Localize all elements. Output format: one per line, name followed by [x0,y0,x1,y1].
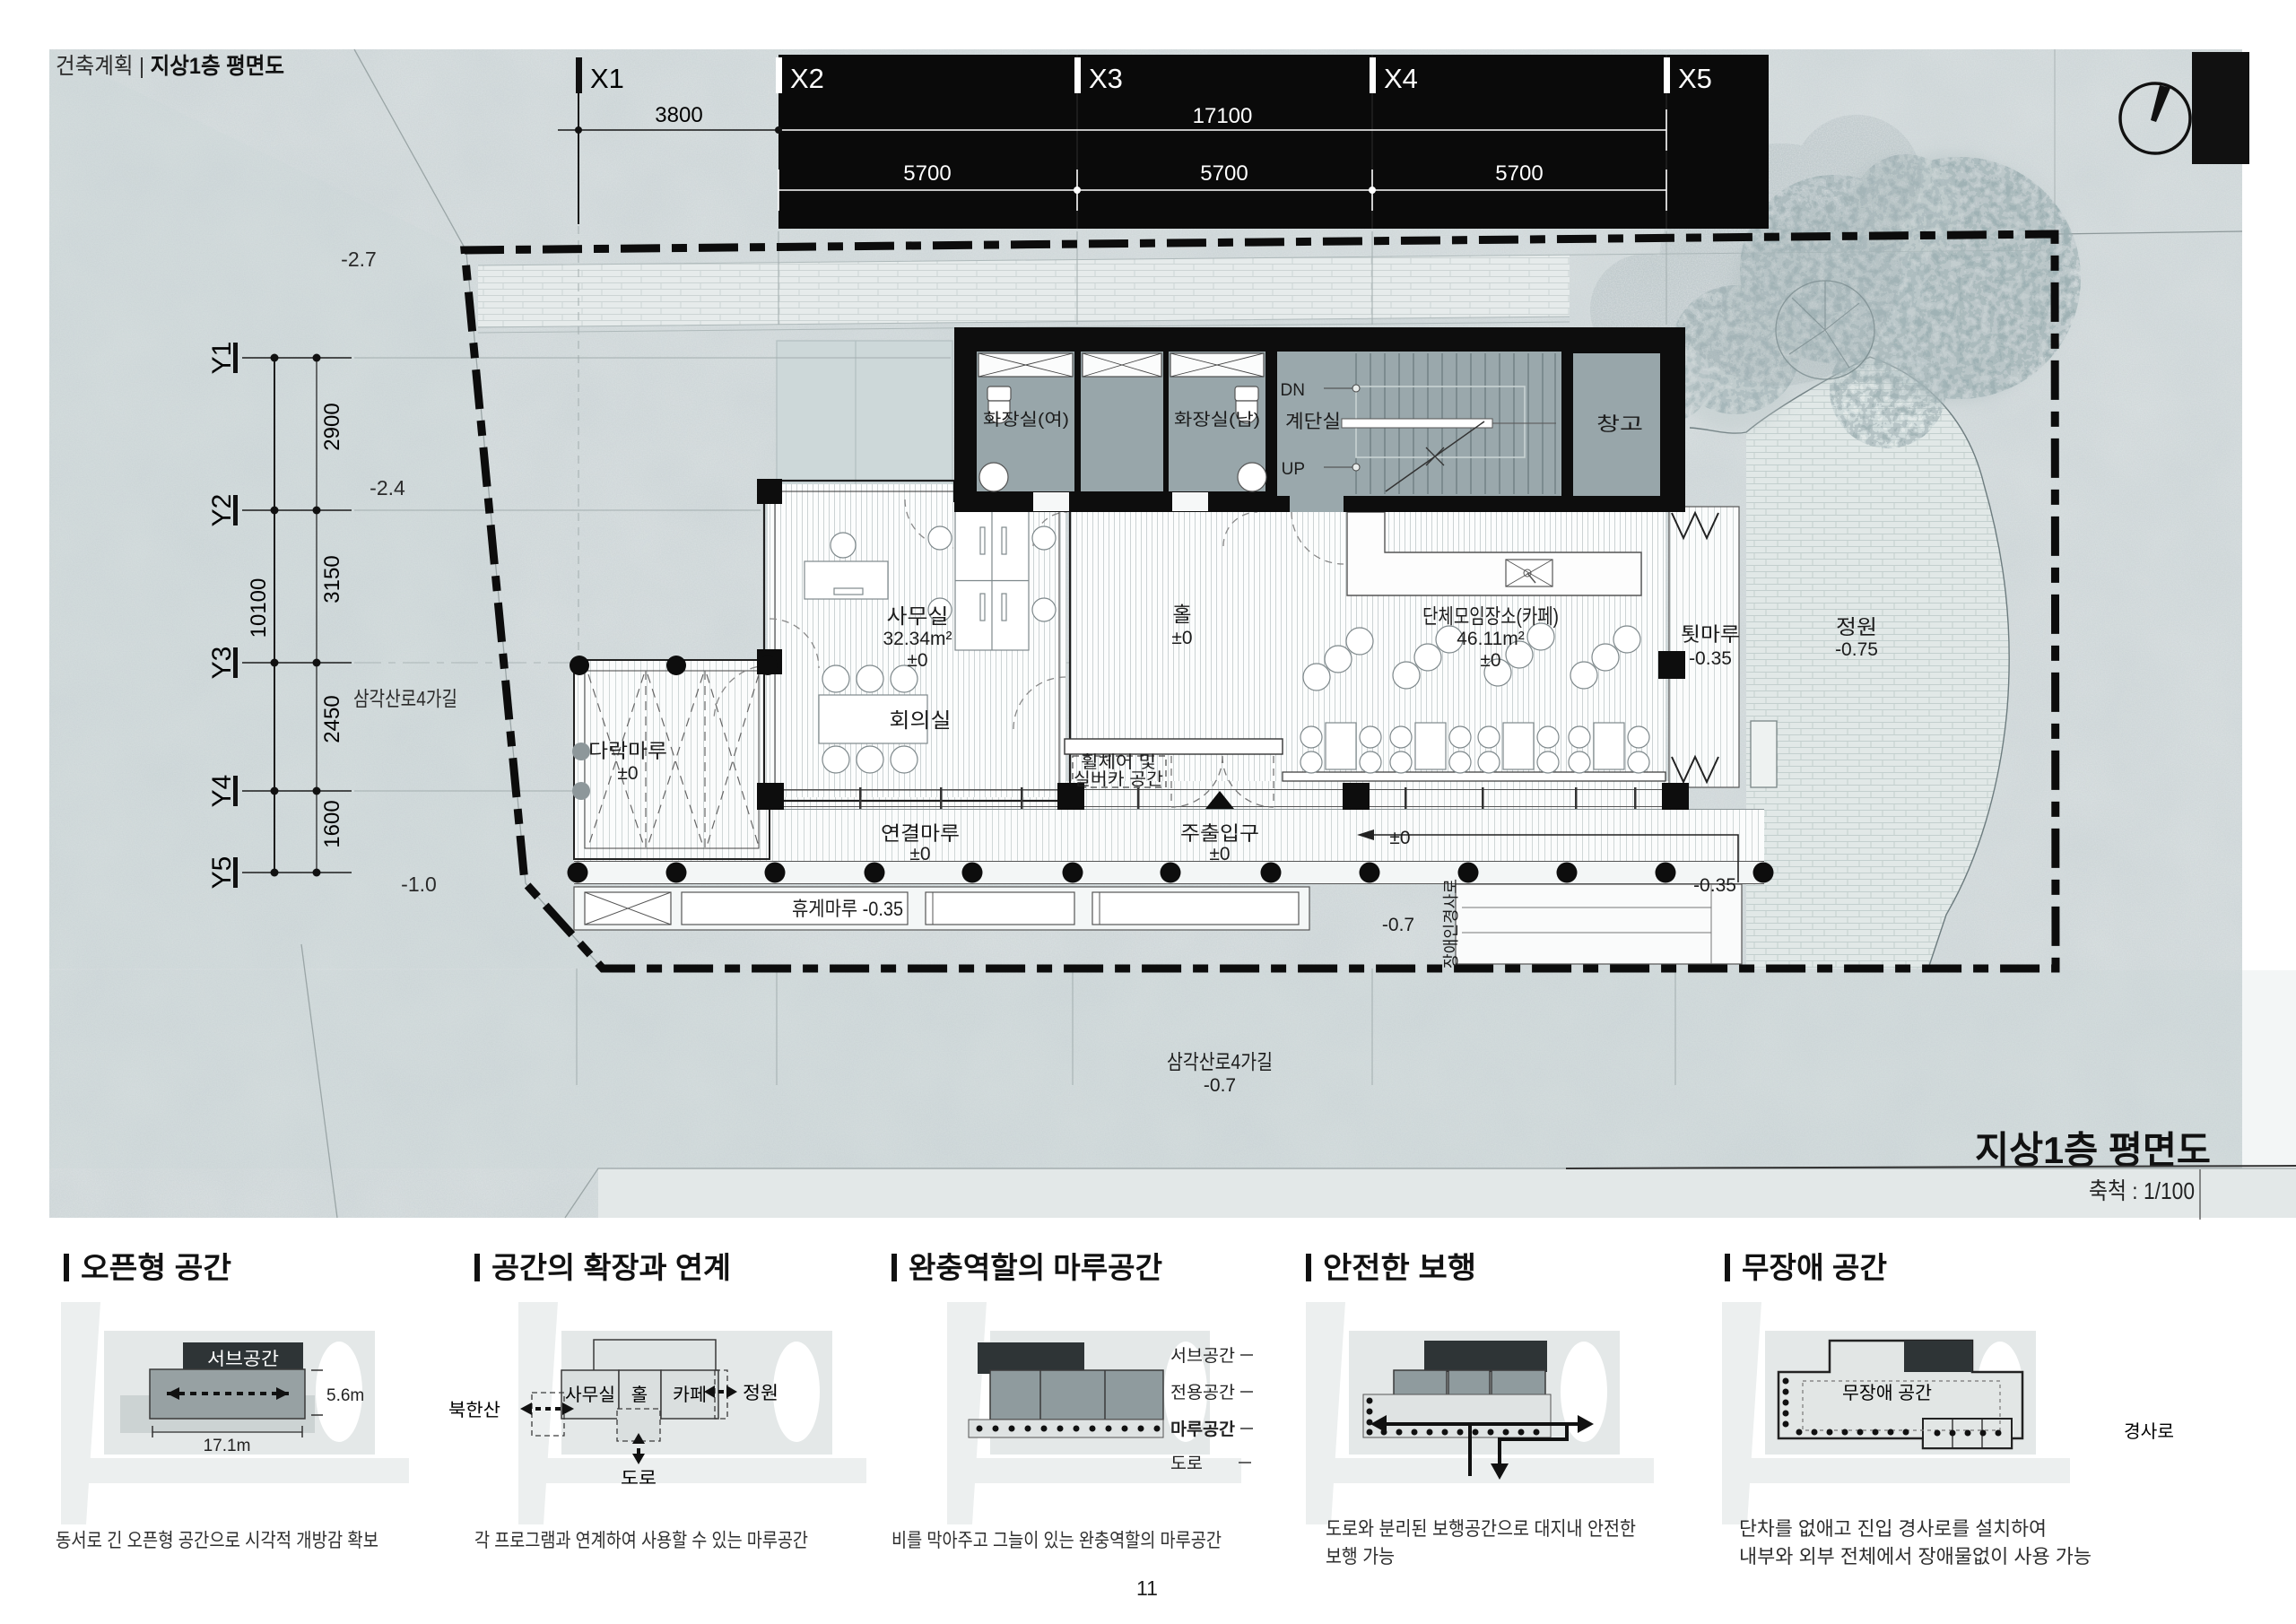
svg-text:보행 가능: 보행 가능 [1326,1546,1395,1568]
svg-text:계단실: 계단실 [1285,412,1341,432]
svg-text:삼각산로4가길: 삼각산로4가길 [353,687,457,710]
svg-text:휠체어 및: 휠체어 및 [1081,752,1156,772]
svg-text:정원: 정원 [1836,615,1877,638]
svg-text:X2: X2 [790,63,824,94]
svg-text:10100: 10100 [247,578,271,638]
svg-text:X1: X1 [590,63,624,94]
svg-text:축척 : 1/100: 축척 : 1/100 [2089,1177,2195,1204]
svg-text:다락마루: 다락마루 [588,740,667,762]
svg-text:5700: 5700 [903,161,951,186]
svg-text:주출입구: 주출입구 [1180,822,1259,845]
svg-text:-0.35: -0.35 [1693,875,1736,896]
svg-text:17100: 17100 [1193,104,1253,128]
svg-text:-1.0: -1.0 [401,873,437,896]
svg-text:-0.35: -0.35 [1689,648,1732,669]
svg-text:Y2: Y2 [207,494,237,527]
svg-text:단차를 없애고 진입 경사로를 설치하여: 단차를 없애고 진입 경사로를 설치하여 [1739,1518,2047,1540]
svg-text:11: 11 [1136,1576,1158,1600]
svg-text:-0.7: -0.7 [1204,1075,1236,1096]
svg-text:X5: X5 [1678,63,1712,94]
svg-text:-0.7: -0.7 [1382,915,1414,935]
svg-text:±0: ±0 [909,844,930,864]
svg-text:도로와 분리된 보행공간으로 대지내 안전한: 도로와 분리된 보행공간으로 대지내 안전한 [1326,1518,1636,1540]
svg-text:32.34m²: 32.34m² [883,629,952,649]
svg-text:북한산: 북한산 [448,1400,500,1420]
svg-text:전용공간: 전용공간 [1170,1383,1235,1403]
svg-text:동서로 긴 오픈형 공간으로 시각적 개방감 확보: 동서로 긴 오픈형 공간으로 시각적 개방감 확보 [56,1530,378,1551]
svg-text:무장애 공간: 무장애 공간 [1842,1383,1932,1403]
svg-text:17.1m: 17.1m [204,1437,251,1455]
svg-text:X3: X3 [1089,63,1123,94]
svg-text:UP: UP [1282,460,1305,479]
svg-text:무장애 공간: 무장애 공간 [1742,1251,1887,1284]
svg-text:지상1층 평면도: 지상1층 평면도 [1975,1129,2211,1171]
svg-text:2900: 2900 [320,403,344,450]
svg-text:건축계획 | 지상1층 평면도: 건축계획 | 지상1층 평면도 [56,54,284,79]
svg-text:실버카 공간: 실버카 공간 [1074,769,1163,789]
svg-text:±0: ±0 [1171,628,1192,648]
svg-text:46.11m²: 46.11m² [1457,629,1524,649]
svg-text:마루공간: 마루공간 [1170,1420,1236,1439]
svg-text:화장실(여): 화장실(여) [983,410,1069,430]
svg-text:5.6m: 5.6m [326,1386,364,1405]
svg-text:±0: ±0 [1389,828,1410,848]
svg-text:안전한 보행: 안전한 보행 [1323,1251,1476,1284]
svg-text:3800: 3800 [655,103,702,127]
svg-text:Y5: Y5 [207,856,237,890]
svg-text:정원: 정원 [743,1383,778,1403]
svg-text:-0.75: -0.75 [1835,639,1878,660]
svg-text:DN: DN [1281,381,1305,400]
svg-text:Y3: Y3 [207,647,237,680]
svg-text:2450: 2450 [320,695,344,743]
svg-text:Y4: Y4 [207,775,237,808]
svg-text:카페: 카페 [673,1385,707,1405]
svg-text:삼각산로4가길: 삼각산로4가길 [1167,1050,1273,1073]
svg-text:회의실: 회의실 [890,708,952,732]
svg-text:휴게마루 -0.35: 휴게마루 -0.35 [792,898,903,920]
svg-text:완충역할의 마루공간: 완충역할의 마루공간 [909,1251,1162,1284]
svg-text:±0: ±0 [1480,650,1500,671]
svg-text:장애인경사로: 장애인경사로 [1442,879,1460,968]
svg-text:내부와 외부 전체에서 장애물없이 사용 가능: 내부와 외부 전체에서 장애물없이 사용 가능 [1739,1546,2092,1568]
svg-text:오픈형 공간: 오픈형 공간 [81,1251,231,1284]
svg-text:1600: 1600 [320,800,344,847]
svg-text:툇마루: 툇마루 [1681,623,1740,646]
svg-text:5700: 5700 [1495,161,1543,186]
svg-text:X4: X4 [1384,63,1418,94]
svg-text:창고: 창고 [1596,414,1643,435]
svg-text:서브공간: 서브공간 [1170,1346,1235,1366]
svg-text:사무실: 사무실 [565,1385,615,1405]
svg-text:연결마루: 연결마루 [881,822,960,845]
svg-text:±0: ±0 [907,650,927,671]
svg-text:±0: ±0 [1209,844,1230,864]
svg-text:화장실(남): 화장실(남) [1174,410,1260,430]
svg-text:각 프로그램과 연계하여 사용할 수 있는 마루공간: 각 프로그램과 연계하여 사용할 수 있는 마루공간 [474,1530,808,1551]
svg-text:도로: 도로 [1170,1455,1203,1473]
svg-text:-2.4: -2.4 [370,476,405,499]
svg-text:홀: 홀 [1172,603,1191,626]
svg-text:±0: ±0 [617,763,638,784]
svg-text:경사로: 경사로 [2124,1421,2174,1442]
svg-text:도로: 도로 [621,1469,657,1489]
svg-text:5700: 5700 [1200,161,1248,186]
svg-text:3150: 3150 [320,555,344,603]
svg-text:단체모임장소(카페): 단체모임장소(카페) [1422,604,1559,628]
svg-text:홀: 홀 [631,1385,648,1405]
svg-text:Y1: Y1 [207,342,237,375]
svg-text:서브공간: 서브공간 [207,1349,279,1369]
svg-text:사무실: 사무실 [887,604,949,628]
svg-text:공간의 확장과 연계: 공간의 확장과 연계 [491,1251,731,1284]
svg-text:-2.7: -2.7 [341,248,377,271]
svg-text:비를 막아주고 그늘이 있는 완충역할의 마루공간: 비를 막아주고 그늘이 있는 완충역할의 마루공간 [891,1530,1222,1551]
